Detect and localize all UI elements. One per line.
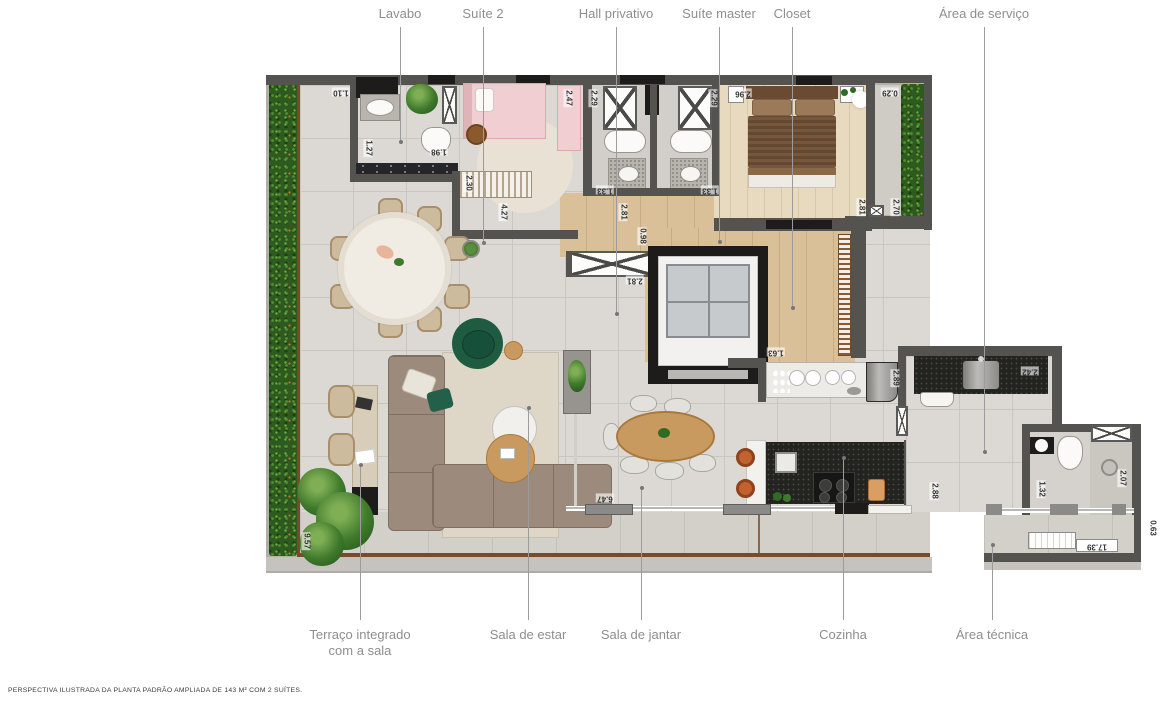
wall-suite2-left	[452, 171, 460, 238]
kitchen-stool-2	[736, 479, 755, 498]
wall-tecnica-bottom	[984, 553, 1141, 562]
terrace-armchair-1	[328, 385, 355, 418]
leader-line	[843, 458, 844, 620]
measurement-label: 2.30	[464, 174, 473, 192]
tecnica-jamb-3	[1112, 504, 1126, 515]
measurement-label: 1.10	[332, 88, 350, 97]
tecnica-jamb-1	[986, 504, 1002, 515]
kitchen-basin-1	[789, 370, 805, 386]
measurement-label: 2.42	[1021, 367, 1039, 376]
kitchen-dish-rack	[772, 369, 790, 393]
room-label-top: Suíte master	[682, 6, 756, 22]
leader-line	[984, 27, 985, 452]
room-label-top: Área de serviço	[939, 6, 1029, 22]
leader-line	[641, 488, 642, 620]
master-bed-pillow-right	[795, 99, 835, 116]
facade-sill-white	[868, 505, 912, 514]
leader-line	[483, 27, 484, 243]
dining-centerpiece	[658, 428, 670, 438]
terrace-armchair-2	[328, 433, 355, 466]
peninsula-sink	[775, 452, 797, 473]
elevator-sill	[668, 370, 748, 379]
bath2-tub	[670, 130, 712, 153]
hall-closet-doors	[569, 251, 655, 277]
table-decor-2	[394, 258, 404, 266]
measurement-label: 2.70	[891, 198, 900, 216]
room-label-bottom: Sala de jantar	[601, 627, 681, 643]
measurement-label: 4.27	[499, 203, 508, 221]
wall-plan-right-top	[924, 75, 932, 230]
hedge-left	[269, 82, 297, 556]
room-label-top: Closet	[774, 6, 811, 22]
side-stool-wood	[504, 341, 523, 360]
measurement-label: 2.81	[857, 198, 866, 216]
measurement-label: 2.96	[734, 89, 752, 98]
bath1-shower-glass	[603, 86, 637, 130]
coffee-table-book	[500, 448, 515, 459]
cooktop	[813, 472, 855, 503]
wall-suite2-bottom	[452, 230, 578, 239]
leader-line	[792, 27, 793, 308]
round-chair-4	[444, 284, 470, 309]
bath-right-shower-glass	[1091, 425, 1132, 442]
lavabo-plant	[406, 84, 438, 114]
master-bed-pillow-left	[752, 99, 792, 116]
green-armchair-cushion	[462, 330, 495, 359]
leader-line	[719, 27, 720, 242]
measurement-label: 0.98	[638, 227, 647, 245]
wall-lavabo-bottom	[350, 174, 462, 182]
room-label-top: Hall privativo	[579, 6, 653, 22]
master-plant-1	[841, 89, 848, 96]
lavabo-door-icon	[442, 86, 457, 124]
floorplan-canvas: LavaboSuíte 2Hall privativoSuíte masterC…	[0, 0, 1168, 707]
terrace-plant-pot	[462, 240, 480, 258]
wall-kitchen-left	[758, 358, 766, 402]
ac-unit-1	[1028, 532, 1076, 549]
garden-walkway	[875, 85, 901, 215]
measurement-label: 1.33	[596, 186, 614, 195]
leader-line	[400, 27, 401, 142]
measurement-label: 17.39	[1086, 542, 1108, 551]
kitchen-counter	[766, 362, 868, 398]
wall-bath-center	[650, 85, 657, 193]
kitchen-faucet	[847, 387, 861, 395]
table-decor-1	[374, 243, 395, 261]
leader-line	[528, 408, 529, 620]
kitchen-basin-2	[805, 370, 821, 386]
master-tv-panel	[766, 220, 832, 229]
door-column-plant	[568, 360, 586, 392]
console-papers	[354, 449, 376, 466]
measurement-label: 6.47	[596, 494, 614, 503]
measurement-label: 2.89	[891, 369, 900, 387]
service-inner-door-icon	[896, 406, 908, 436]
glass-panel-vertical	[574, 414, 577, 506]
room-label-bottom: Cozinha	[819, 627, 867, 643]
kitchen-basin-3	[825, 370, 840, 385]
bath-right-showerhead	[1101, 459, 1118, 476]
closet-clothes-rack	[838, 234, 851, 356]
wall-master-garden	[866, 82, 875, 222]
facade-panel-1	[585, 504, 633, 515]
measurement-label: 2.81	[626, 276, 644, 285]
green-armchair	[452, 318, 503, 369]
measurement-label: 2.47	[564, 89, 573, 107]
measurement-label: 1.63	[767, 348, 785, 357]
leader-line	[360, 465, 361, 620]
wall-bath-right-left	[1022, 424, 1030, 518]
suite2-bed-pillow	[475, 88, 494, 112]
hall-closet-cap-left	[566, 251, 572, 277]
bath2-shower-glass	[678, 86, 712, 130]
wall-top-cabinet-1	[428, 75, 455, 84]
ledge-bottom	[266, 557, 932, 573]
bath1-tub	[604, 130, 646, 153]
elevator-glass	[666, 264, 750, 338]
leader-line	[992, 545, 993, 620]
tecnica-jamb-2	[1050, 504, 1078, 515]
measurement-label: 2.81	[619, 203, 628, 221]
bath2-sink	[680, 166, 701, 182]
room-label-top: Suíte 2	[462, 6, 503, 22]
round-dining-table	[338, 212, 451, 325]
elevator-glass-mullion-h	[668, 301, 748, 303]
room-label-top: Lavabo	[379, 6, 422, 22]
measurement-label: 1.32	[1037, 480, 1046, 498]
measurement-label: 0.63	[1148, 519, 1157, 537]
facade-panel-2	[723, 504, 771, 515]
dining-chair-5	[655, 462, 684, 480]
measurement-label: 1.98	[430, 147, 448, 156]
measurement-label: 0.29	[881, 88, 899, 97]
measurement-label: 2.29	[709, 89, 718, 107]
measurement-label: 2.07	[1118, 469, 1127, 487]
leader-line	[616, 27, 617, 314]
measurement-label: 2.29	[589, 89, 598, 107]
wall-wing-top	[898, 346, 1060, 356]
dining-chair-1	[630, 395, 657, 412]
kitchen-basin-4	[841, 370, 856, 385]
kitchen-stool-1	[736, 448, 755, 467]
wall-top-cabinet-3	[620, 75, 665, 84]
measurement-label: 1.27	[364, 139, 373, 157]
lavabo-sink	[366, 99, 394, 116]
bath-right-toilet	[1057, 436, 1083, 470]
peninsula-plant-1	[773, 492, 782, 501]
wall-wing-right	[1052, 346, 1062, 432]
measurement-label: 2.88	[930, 482, 939, 500]
bath1-sink	[618, 166, 639, 182]
terrace-seam	[758, 515, 760, 553]
measurement-label: 1.33	[701, 186, 719, 195]
room-label-bottom: Sala de estar	[490, 627, 567, 643]
room-label-bottom: Terraço integrado com a sala	[309, 627, 410, 658]
room-label-bottom: Área técnica	[956, 627, 1028, 643]
disclaimer-text: PERSPECTIVA ILUSTRADA DA PLANTA PADRÃO A…	[8, 688, 302, 695]
cutting-board	[868, 479, 885, 501]
garden-door-icon	[869, 205, 884, 217]
washer	[920, 392, 954, 407]
measurement-label: 9.57	[302, 532, 311, 550]
service-sink	[962, 360, 1000, 390]
bath-right-sink	[1035, 439, 1048, 452]
wall-closet-right	[851, 228, 866, 358]
peninsula-plant-2	[783, 494, 791, 502]
tecnica-ledge	[984, 562, 1141, 570]
facade-counter-sill	[835, 503, 869, 514]
